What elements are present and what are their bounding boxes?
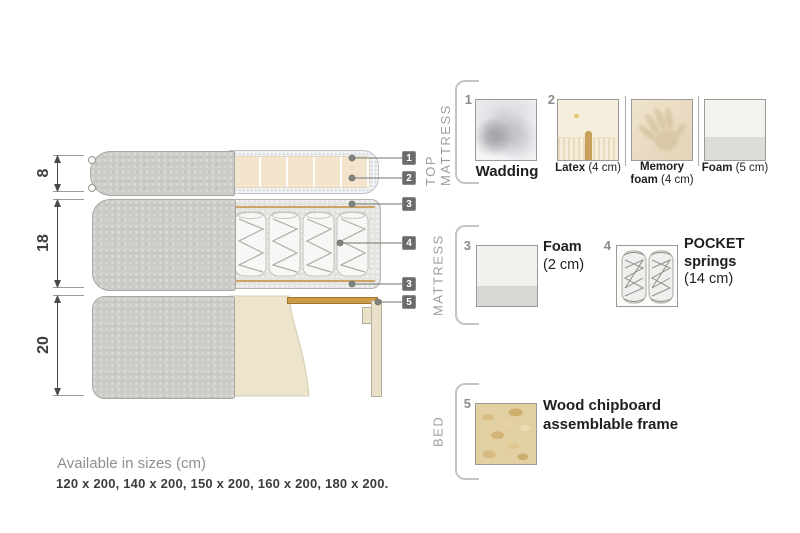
dimension-18cm: 18 (31, 229, 57, 257)
foam-2cm-swatch (476, 245, 538, 307)
pocket-name-line1: POCKET (684, 236, 744, 254)
foam2-size: (2 cm) (543, 256, 584, 274)
tag-2: 2 (402, 171, 416, 185)
wood-slat (287, 297, 378, 304)
marker-3: 3 (457, 238, 471, 253)
section-label-top-mattress: TOP MATTRESS (427, 78, 449, 186)
mattress-cutaway (225, 199, 381, 289)
memory-foam-caption: Memory foam (4 cm) (623, 161, 701, 187)
chipboard-line1: Wood chipboard (543, 397, 678, 416)
hand-imprint-graphic (632, 100, 693, 161)
top-mattress-cover (90, 151, 235, 196)
dimension-ticks (53, 156, 84, 396)
tag-5: 5 (402, 295, 416, 309)
foam2-name: Foam (543, 238, 584, 256)
latex-blocks (233, 156, 370, 188)
memory-name-line1: Memory (640, 161, 684, 173)
frame-side-plank (371, 300, 382, 397)
foam-2cm-caption: Foam (2 cm) (543, 238, 584, 274)
marker-5: 5 (457, 396, 471, 411)
available-sizes-title: Available in sizes (cm) (57, 455, 206, 472)
mattress-felt-top (232, 206, 375, 208)
available-sizes-list: 120 x 200, 140 x 200, 150 x 200, 160 x 2… (56, 476, 388, 491)
latex-speck (574, 114, 579, 118)
latex-size: (4 cm) (585, 162, 621, 174)
pocket-springs-swatch (616, 245, 678, 307)
pocket-springs-graphic (234, 210, 374, 280)
chipboard-caption: Wood chipboard assemblable frame (543, 397, 678, 434)
latex-caption: Latex (4 cm) (549, 162, 627, 174)
mattress-cover (92, 199, 236, 291)
tag-4: 4 (402, 236, 416, 250)
foam5-size: (5 cm) (732, 162, 768, 174)
wadding-caption: Wadding (465, 163, 549, 180)
foam-5cm-swatch (704, 99, 766, 161)
cover-eyelet (88, 156, 96, 164)
section-label-mattress: MATTRESS (427, 225, 449, 325)
latex-name: Latex (555, 162, 585, 174)
bed-layers-infographic: 8 18 20 (0, 0, 800, 533)
tag-3-bottom: 3 (402, 277, 416, 291)
cover-eyelet (88, 184, 96, 192)
swatch-divider (625, 96, 626, 166)
chipboard-line2: assemblable frame (543, 416, 678, 435)
memory-name-line2: foam (630, 174, 657, 186)
wadding-swatch (475, 99, 537, 161)
dimension-8cm: 8 (31, 159, 57, 187)
chipboard-swatch (475, 403, 537, 465)
dimension-arrows (55, 156, 60, 395)
marker-4: 4 (597, 238, 611, 253)
pocket-springs-caption: POCKET springs (14 cm) (684, 236, 744, 289)
latex-streak (585, 131, 592, 160)
pocket-name-line2: springs (684, 254, 744, 272)
foam5-name: Foam (702, 162, 733, 174)
pocket-springs-pair-graphic (617, 246, 678, 307)
marker-1: 1 (458, 92, 472, 107)
mattress-felt-bottom (232, 280, 375, 282)
latex-swatch (557, 99, 619, 161)
tag-3-top: 3 (402, 197, 416, 211)
tag-1: 1 (402, 151, 416, 165)
memory-foam-swatch (631, 99, 693, 161)
swatch-divider (698, 96, 699, 166)
memory-size: (4 cm) (658, 174, 694, 186)
section-label-bed: BED (427, 383, 449, 480)
bed-base-cover (92, 296, 235, 399)
dimension-20cm: 20 (31, 331, 57, 359)
top-mattress-cutaway (227, 150, 379, 194)
pocket-size: (14 cm) (684, 271, 744, 289)
foam-5cm-caption: Foam (5 cm) (696, 162, 774, 174)
marker-2: 2 (541, 92, 555, 107)
